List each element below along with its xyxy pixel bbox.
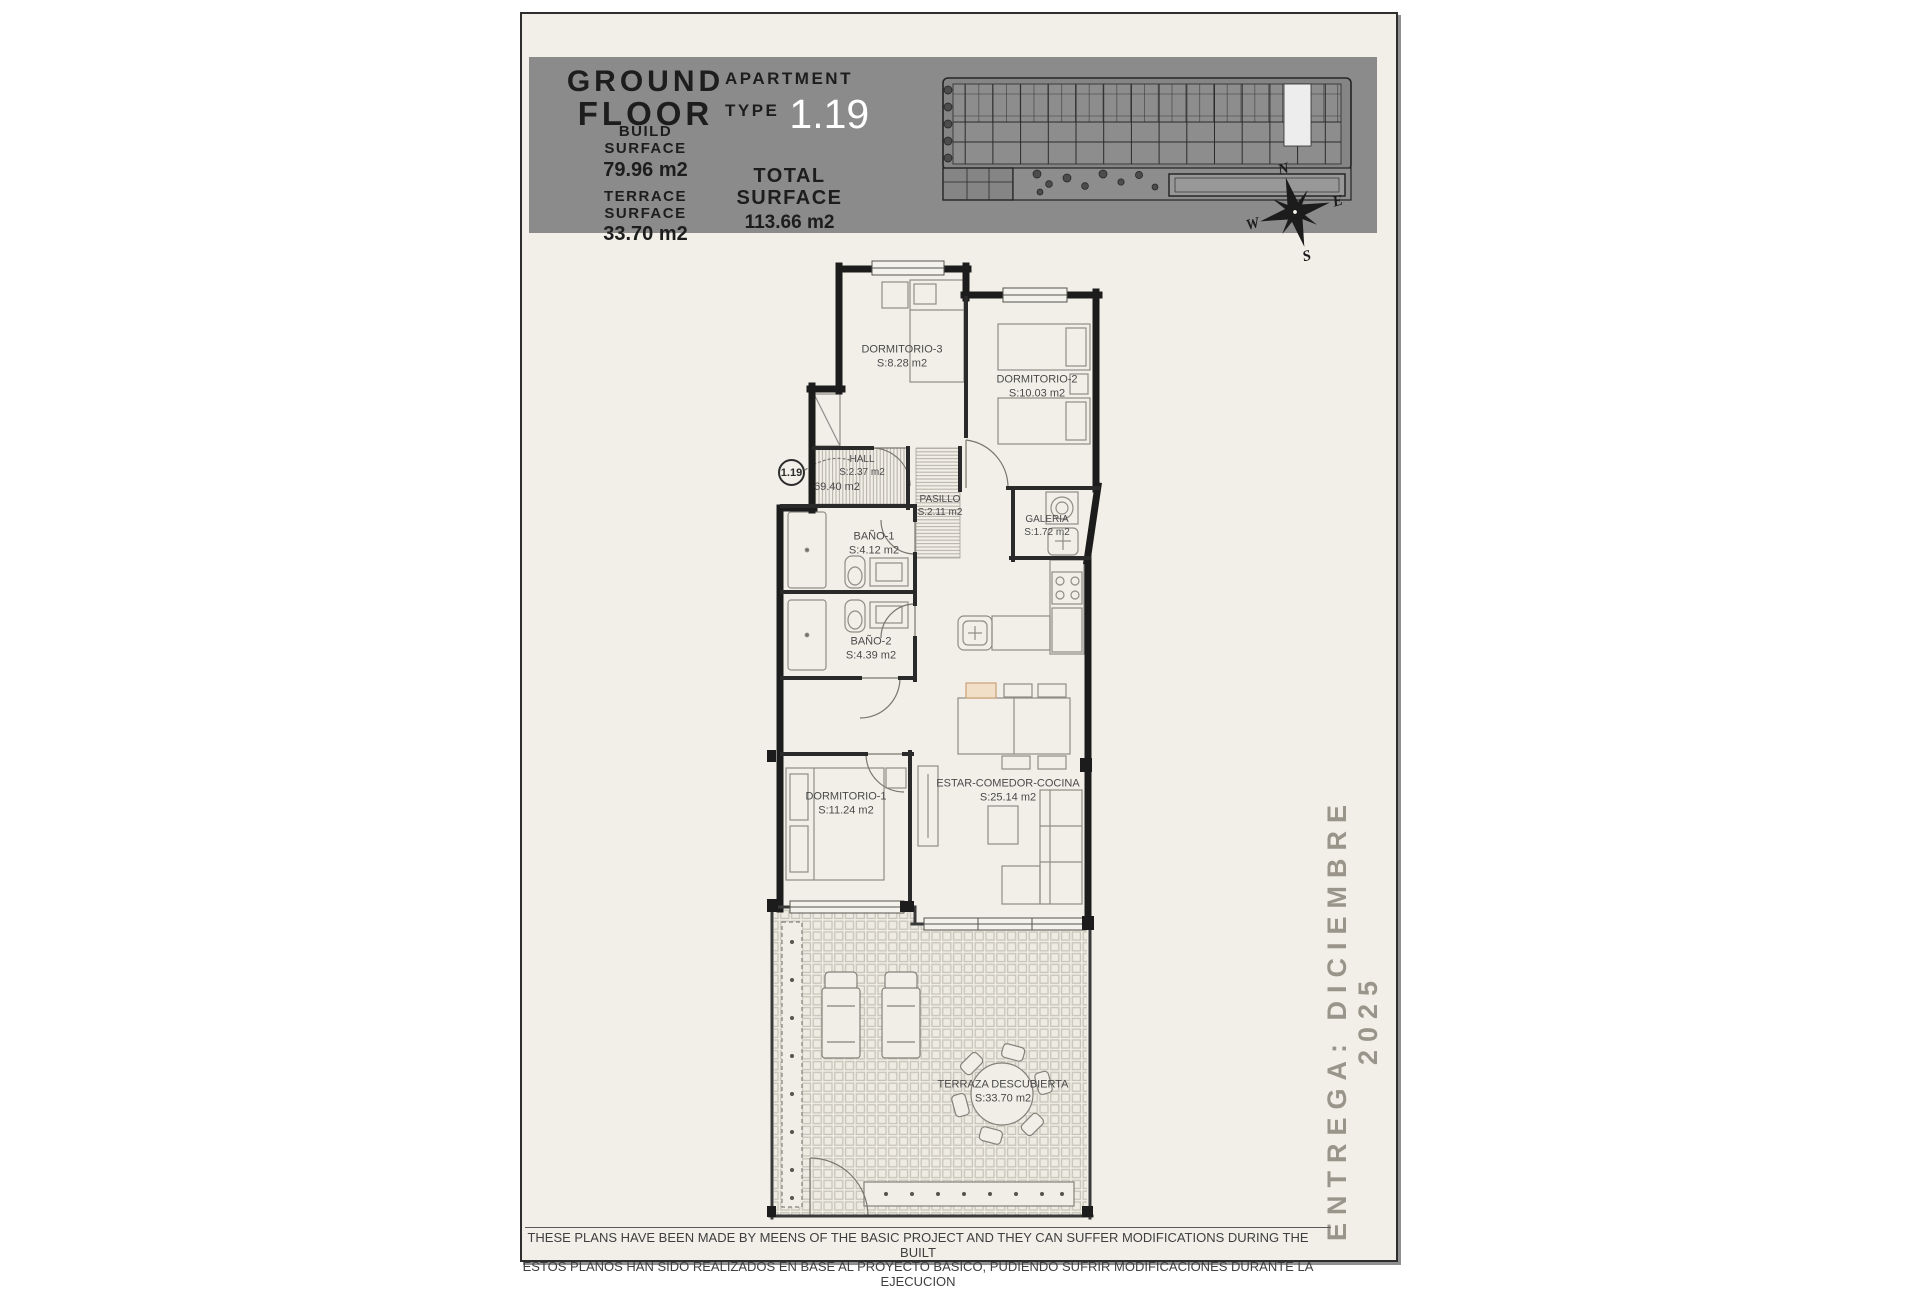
room-label-bano-2: BAÑO-2 S:4.39 m2 bbox=[846, 635, 896, 664]
build-surface-label: BUILD SURFACE bbox=[581, 123, 711, 158]
disclaimer-line-es: ESTOS PLANOS HAN SIDO REALIZADOS EN BASE… bbox=[522, 1260, 1314, 1289]
disclaimer: THESE PLANS HAVE BEEN MADE BY MEENS OF T… bbox=[522, 1231, 1314, 1289]
total-surface-label: TOTAL SURFACE bbox=[730, 165, 850, 209]
total-surface-value: 113.66 m2 bbox=[717, 212, 862, 234]
floor-title-line1: GROUND bbox=[543, 67, 748, 97]
unit-marker-badge: 1.19 bbox=[778, 459, 805, 486]
compass-east-label: E bbox=[1330, 193, 1345, 211]
plan-sheet: GROUND FLOOR BUILD SURFACE 79.96 m2 TERR… bbox=[520, 12, 1398, 1262]
apartment-type-block: APARTMENT TYPE 1.19 bbox=[725, 69, 895, 134]
common-area-note: 69.40 m2 bbox=[814, 481, 860, 493]
compass-north-label: N bbox=[1275, 160, 1292, 179]
total-surface-block: TOTAL SURFACE 113.66 m2 bbox=[717, 165, 862, 234]
highlighted-unit bbox=[1284, 84, 1311, 146]
accent-chair bbox=[966, 683, 996, 698]
compass-south-label: S bbox=[1301, 248, 1313, 264]
floor-title: GROUND FLOOR bbox=[543, 67, 748, 132]
delivery-note: ENTREGA: DICIEMBRE 2025 bbox=[1322, 776, 1366, 1262]
room-label-dormitorio-1: DORMITORIO-1 S:11.24 m2 bbox=[805, 790, 886, 819]
room-label-hall: HALL S:2.37 m2 bbox=[839, 453, 885, 479]
room-label-pasillo: PASILLO S:2.11 m2 bbox=[918, 493, 963, 519]
compass-rose: N E S W bbox=[1245, 160, 1345, 264]
room-label-terraza-descubierta: TERRAZA DESCUBIERTA S:33.70 m2 bbox=[937, 1078, 1068, 1107]
room-label-dormitorio-3: DORMITORIO-3 S:8.28 m2 bbox=[861, 343, 942, 372]
terrace-surface-label: TERRACE SURFACE bbox=[581, 188, 711, 223]
apartment-number: 1.19 bbox=[789, 95, 869, 134]
compass-west-label: W bbox=[1245, 214, 1263, 233]
apartment-label: APARTMENT bbox=[725, 69, 895, 89]
room-label-bano-1: BAÑO-1 S:4.12 m2 bbox=[849, 530, 899, 559]
type-label: TYPE bbox=[725, 101, 779, 121]
room-label-estar-comedor-cocina: ESTAR-COMEDOR-COCINA S:25.14 m2 bbox=[936, 777, 1079, 806]
page: { "header": { "floor_line1": "GROUND", "… bbox=[0, 0, 1920, 1280]
room-label-galeria: GALERIA S:1.72 m2 bbox=[1024, 513, 1070, 539]
room-label-dormitorio-2: DORMITORIO-2 S:10.03 m2 bbox=[996, 373, 1077, 402]
disclaimer-line-en: THESE PLANS HAVE BEEN MADE BY MEENS OF T… bbox=[522, 1231, 1314, 1260]
